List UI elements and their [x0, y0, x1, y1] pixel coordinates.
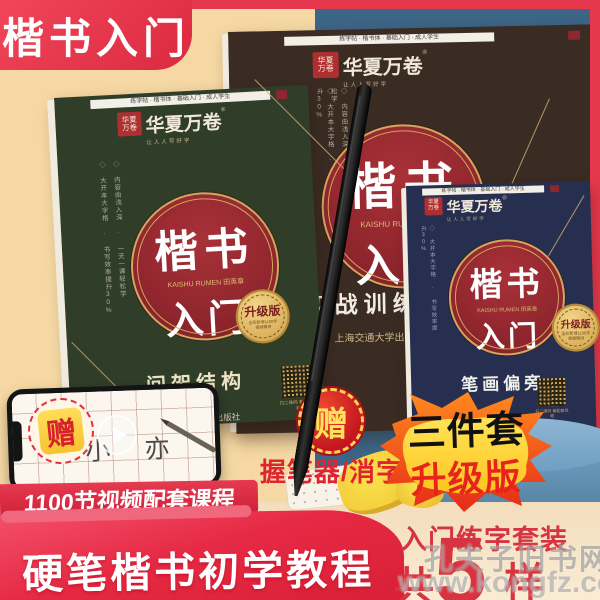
brand-name: 华夏万卷 — [343, 56, 423, 80]
book-page-edge — [47, 100, 71, 431]
flame-promo-badge: 三件套 升级版 — [380, 390, 552, 512]
brand-slogan: 让人人写好字 — [343, 79, 428, 89]
seal-line2: 万卷 — [122, 124, 137, 133]
cover-title-latin: KAISHU RUMEN 田英章 — [134, 275, 278, 293]
cover-top-tag — [550, 185, 559, 192]
gift-badge-phone: 赠 — [28, 398, 94, 464]
upgrade-badge-text: 升级版 — [237, 301, 288, 321]
gift-badge-phone-text: 赠 — [37, 407, 85, 455]
seal-line2: 万卷 — [318, 65, 334, 74]
cover-top-tag — [276, 90, 287, 100]
bottom-banner-text: 硬笔楷书初学教程 — [0, 535, 404, 600]
brand-reg-mark: ® — [502, 195, 507, 201]
brand-slogan: 让人人写好字 — [447, 215, 508, 223]
flame-text-bottom: 升级版 — [379, 447, 553, 505]
upgrade-badge-note: 全彩新增1100字 — [554, 330, 598, 336]
upgrade-badge-note: 视频精讲 — [238, 323, 288, 331]
seal-line2: 万卷 — [428, 206, 439, 212]
brand-row: 华夏 万卷 华夏万卷® 让人人写好字 — [117, 107, 227, 148]
brand-name: 华夏万卷 — [145, 112, 222, 137]
brand-seal: 华夏 万卷 — [312, 52, 339, 79]
cover-top-strip: 练字帖 · 楷书体 · 基础入门 · 成人学生 — [284, 32, 494, 45]
cover-title-sub: 入门 — [451, 312, 564, 357]
brand-seal: 华夏 万卷 — [424, 197, 442, 215]
brand-seal: 华夏 万卷 — [117, 111, 142, 136]
cover-title-latin: KAISHU RUMEN 田英章 — [451, 304, 563, 315]
bottom-red-banner: 硬笔楷书初学教程 — [0, 509, 405, 600]
product-image: 楷书入门 练字帖 · 楷书体 · 基础入门 · 成人学生 华夏 万卷 华夏万卷®… — [0, 0, 600, 600]
brand-reg-mark: ® — [221, 107, 226, 113]
brand-row: 华夏 万卷 华夏万卷® 让人人写好字 — [312, 50, 427, 89]
brand-name-block: 华夏万卷® 让人人写好字 — [145, 107, 227, 146]
phone-notch — [12, 421, 22, 461]
cover-top-tag — [568, 31, 580, 40]
brand-name-block: 华夏万卷® 让人人写好字 — [446, 195, 507, 223]
brand-name: 华夏万卷 — [446, 199, 502, 215]
upgrade-badge: 升级版 全彩新增1100字 视频精讲 — [553, 305, 598, 350]
upgrade-badge-note: 视频精讲 — [554, 335, 598, 341]
corner-title-text: 楷书入门 — [2, 5, 190, 66]
brand-row: 华夏 万卷 华夏万卷® 让人人写好字 — [424, 195, 507, 223]
cover-title-main: 楷书 — [450, 256, 563, 307]
watermark-url: www.kongfz.com — [398, 566, 600, 600]
cover-medallion: 楷书 KAISHU RUMEN 田英章 入门 — [447, 238, 566, 357]
brand-name-block: 华夏万卷® 让人人写好字 — [342, 50, 427, 89]
cover-side-note: ◇ 大开本大字格 · 书写效率提升30% — [419, 225, 438, 335]
book-green-jianjia: 练字帖 · 楷书体 · 基础入门 · 成人学生 华夏 万卷 华夏万卷® 让人人写… — [54, 85, 325, 432]
corner-title-banner: 楷书入门 — [0, 0, 192, 70]
cover-top-strip: 练字帖 · 楷书体 · 基础入门 · 成人学生 — [422, 185, 544, 195]
upgrade-badge-note: 全彩新增1100字 — [238, 318, 288, 326]
brand-reg-mark: ® — [422, 50, 427, 56]
cover-top-strip: 练字帖 · 楷书体 · 基础入门 · 成人学生 — [90, 91, 270, 109]
cover-title-main: 楷书 — [130, 211, 277, 282]
upgrade-badge-text: 升级版 — [553, 315, 597, 331]
